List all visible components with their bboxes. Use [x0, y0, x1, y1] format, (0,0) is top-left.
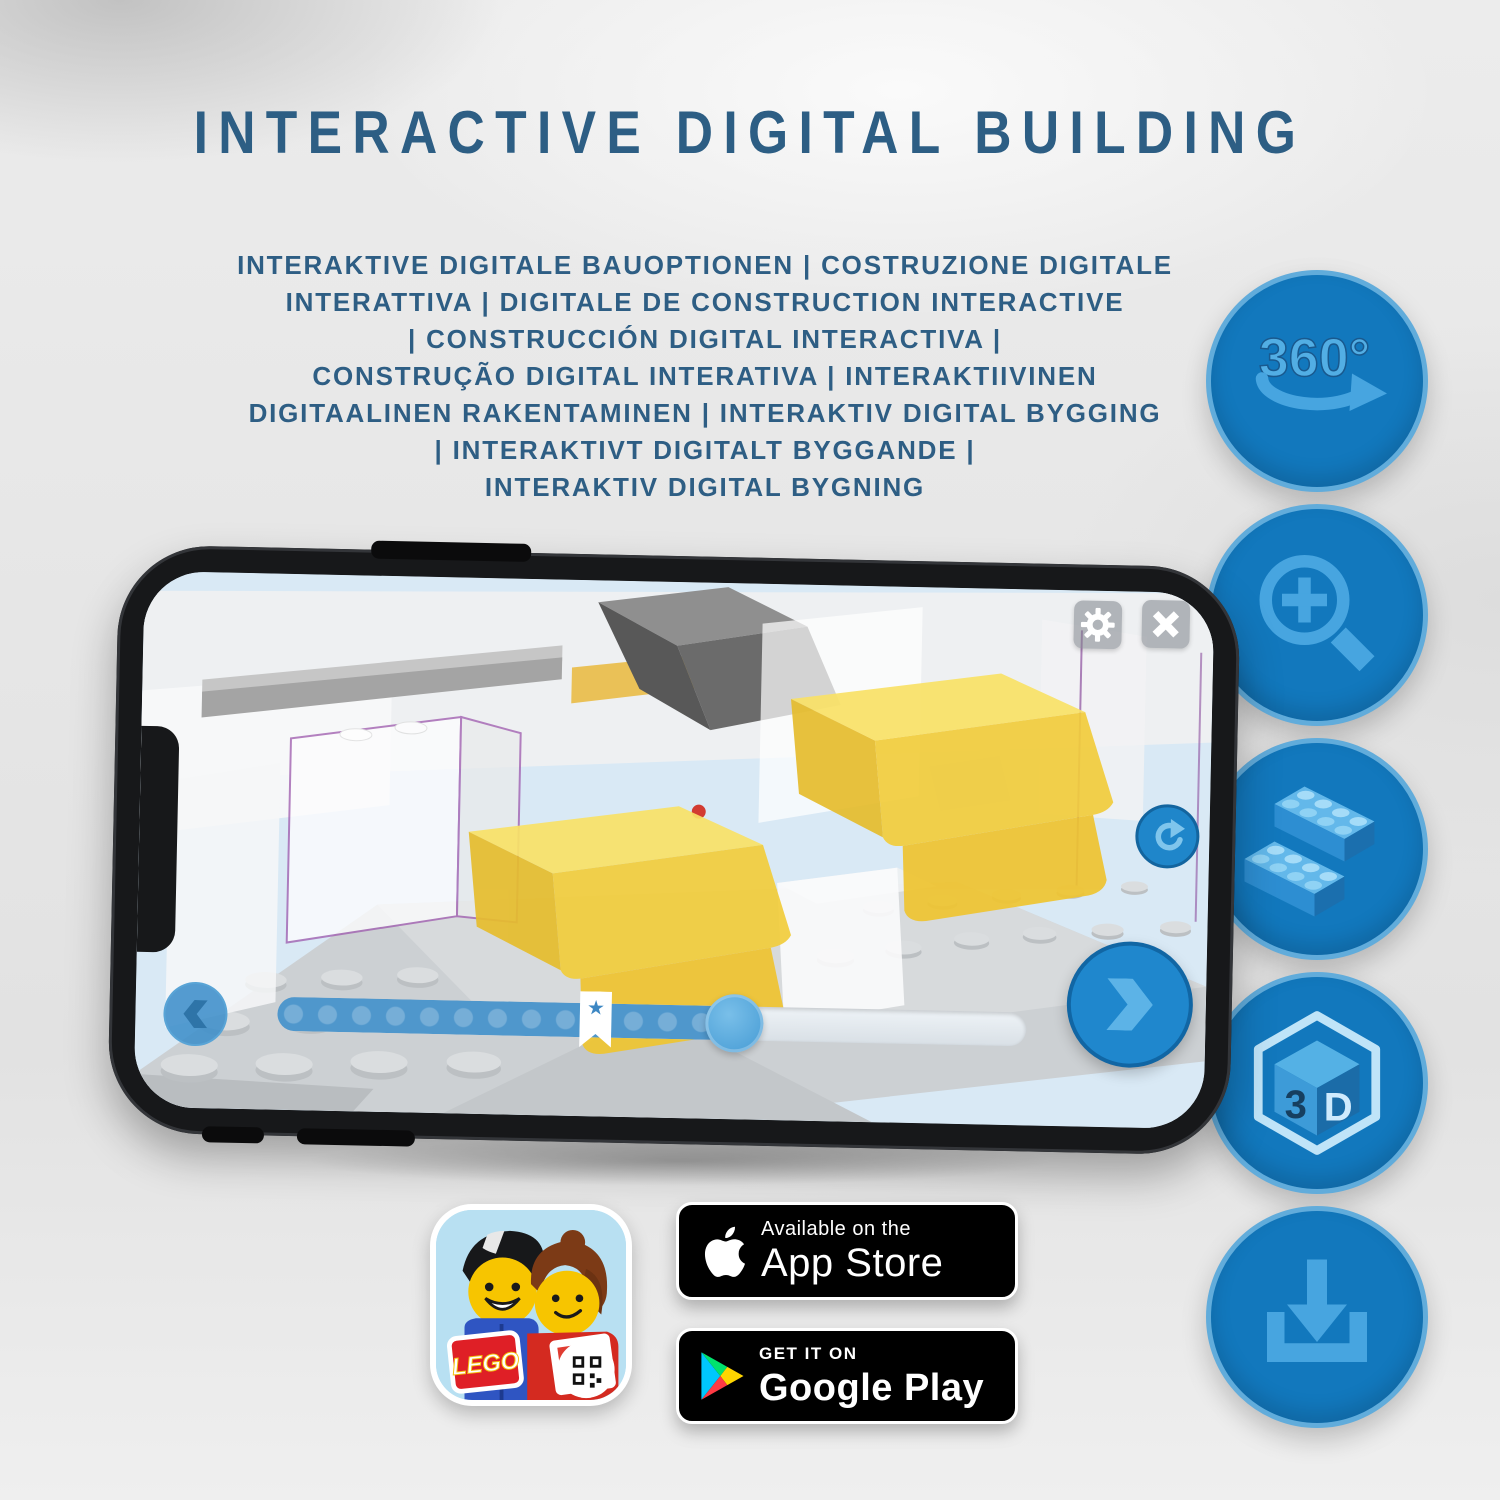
feature-download-badge	[1206, 1206, 1428, 1428]
feature-bricks-badge	[1206, 738, 1428, 960]
phone-notch	[137, 726, 180, 953]
feature-icons-column: 360°	[1206, 270, 1428, 1440]
subtitle-line: | INTERAKTIVT DIGITALT BYGGANDE |	[190, 432, 1220, 469]
page-title: INTERACTIVE DIGITAL BUILDING	[0, 98, 1500, 167]
google-play-tagline: GET IT ON	[759, 1342, 984, 1366]
subtitle-line: DIGITAALINEN RAKENTAMINEN | INTERAKTIV D…	[190, 395, 1220, 432]
product-image: INTERACTIVE DIGITAL BUILDING INTERAKTIVE…	[0, 0, 1500, 1500]
chevron-left-icon	[183, 1000, 208, 1028]
google-play-badge[interactable]: GET IT ON Google Play	[676, 1328, 1018, 1424]
close-button[interactable]	[1141, 600, 1190, 649]
phone-power-button	[371, 541, 531, 562]
app-store-badge[interactable]: Available on the App Store	[676, 1202, 1018, 1300]
app-screen: ★	[134, 571, 1215, 1129]
svg-text:D: D	[1324, 1086, 1353, 1130]
feature-360-badge: 360°	[1206, 270, 1428, 492]
close-icon	[1150, 608, 1183, 641]
subtitle-line: | CONSTRUCCIÓN DIGITAL INTERACTIVA |	[190, 321, 1220, 358]
phone-volume-button	[297, 1128, 415, 1146]
gear-icon	[1080, 607, 1115, 642]
zoom-in-icon	[1242, 540, 1392, 690]
feature-3d-badge: 3 D	[1206, 972, 1428, 1194]
google-play-triangle-icon	[701, 1349, 745, 1403]
app-store-name: App Store	[761, 1241, 943, 1285]
subtitle-line: CONSTRUÇÃO DIGITAL INTERATIVA | INTERAKT…	[190, 358, 1220, 395]
lego-app-icon[interactable]: LEGO	[430, 1204, 632, 1406]
chevron-right-icon	[1106, 978, 1153, 1031]
app-store-tagline: Available on the	[761, 1217, 943, 1241]
phone-mockup: ★	[107, 544, 1241, 1155]
download-icon	[1242, 1242, 1392, 1392]
3d-view-icon: 3 D	[1242, 1008, 1392, 1158]
subtitle-line: INTERATTIVA | DIGITALE DE CONSTRUCTION I…	[190, 284, 1220, 321]
subtitle: INTERAKTIVE DIGITALE BAUOPTIONEN | COSTR…	[190, 247, 1220, 506]
google-play-name: Google Play	[759, 1366, 984, 1410]
subtitle-line: INTERAKTIVE DIGITALE BAUOPTIONEN | COSTR…	[190, 247, 1220, 284]
lego-3d-scene	[134, 571, 1215, 1129]
settings-button[interactable]	[1073, 600, 1122, 649]
phone-volume-button	[202, 1126, 264, 1143]
360-icon: 360°	[1242, 306, 1392, 456]
svg-text:3: 3	[1285, 1083, 1307, 1127]
lego-minifigures-art: LEGO	[436, 1210, 626, 1400]
rotate-icon	[1148, 817, 1187, 856]
subtitle-line: INTERAKTIV DIGITAL BYGNING	[190, 469, 1220, 506]
apple-icon	[701, 1223, 747, 1279]
lego-bricks-icon	[1242, 774, 1392, 924]
